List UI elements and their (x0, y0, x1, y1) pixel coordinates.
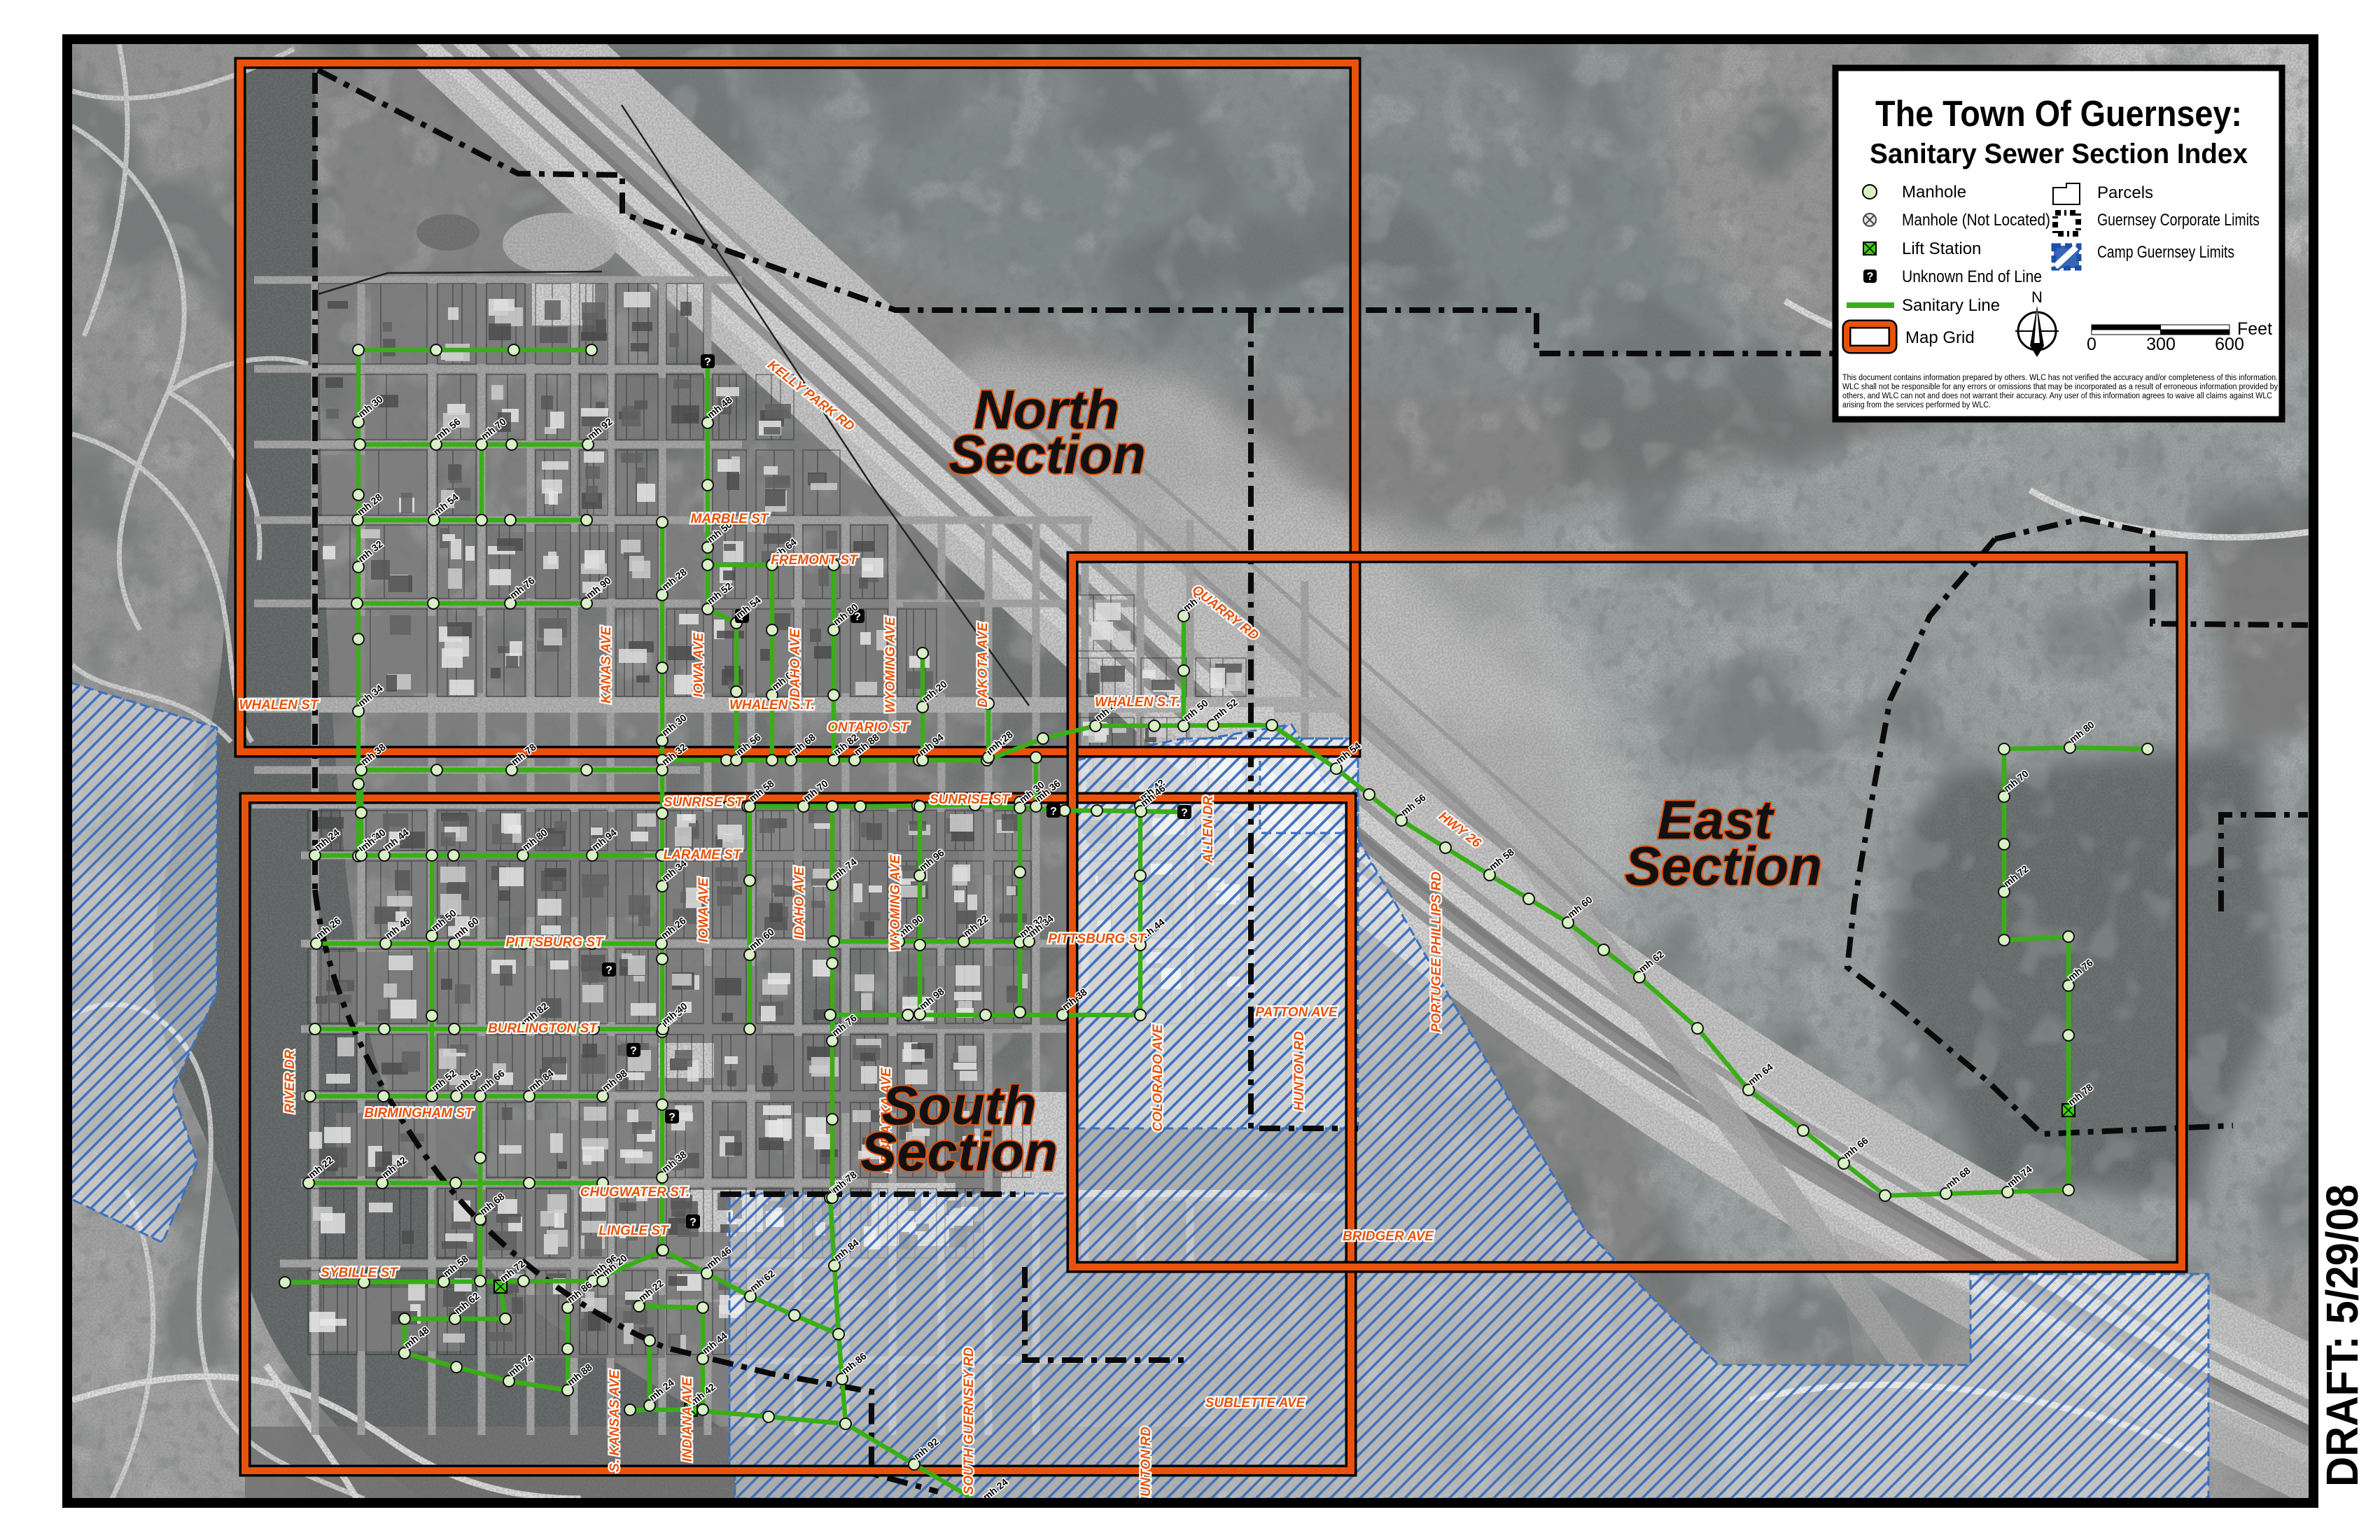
svg-text:IDAHO AVE: IDAHO AVE (788, 628, 803, 701)
svg-text:BIRMINGHAM ST: BIRMINGHAM ST (364, 1106, 474, 1121)
svg-text:This document contains informa: This document contains information prepa… (1842, 374, 2278, 382)
svg-text:IOWA AVE: IOWA AVE (692, 632, 706, 698)
svg-text:INDIANA AVE: INDIANA AVE (680, 1376, 695, 1462)
svg-text:S. KANSAS AVE: S. KANSAS AVE (608, 1369, 622, 1472)
svg-text:arising from the services perf: arising from the services performed by W… (1842, 401, 1991, 409)
svg-text:SUNRISE ST: SUNRISE ST (664, 795, 744, 810)
svg-text:PITTSBURG ST: PITTSBURG ST (1048, 932, 1147, 946)
svg-text:Manhole (Not Located): Manhole (Not Located) (1902, 211, 2050, 230)
svg-text:KANAS AVE: KANAS AVE (599, 626, 614, 703)
svg-text:others, and WLC can not and do: others, and WLC can not and does not war… (1842, 392, 2272, 400)
svg-text:SUBLETTE AVE: SUBLETTE AVE (1205, 1396, 1306, 1410)
svg-text:Map Grid: Map Grid (1905, 328, 1975, 347)
svg-text:0: 0 (2087, 335, 2096, 354)
svg-text:SYBILLE ST: SYBILLE ST (321, 1266, 398, 1280)
svg-text:N: N (2031, 288, 2043, 306)
svg-text:WHALEN S.T.: WHALEN S.T. (1095, 695, 1180, 710)
svg-text:COLORADO AVE: COLORADO AVE (1151, 1023, 1165, 1131)
svg-text:300: 300 (2146, 335, 2176, 354)
svg-text:?: ? (689, 1217, 696, 1228)
svg-text:Section: Section (860, 1121, 1058, 1182)
svg-text:WHALEN ST: WHALEN ST (239, 698, 319, 713)
svg-text:ONTARIO ST: ONTARIO ST (827, 720, 909, 735)
svg-text:CHUGWATER ST.: CHUGWATER ST. (580, 1185, 690, 1200)
svg-text:IDAHO AVE: IDAHO AVE (792, 866, 807, 939)
svg-text:IOWA AVE: IOWA AVE (696, 877, 711, 943)
svg-text:ALLEN DR: ALLEN DR (1201, 796, 1216, 864)
svg-text:WYOMING AVE: WYOMING AVE (883, 616, 898, 713)
svg-text:WLC shall not be responsible f: WLC shall not be responsible for any err… (1842, 383, 2278, 391)
svg-text:BRIDGER AVE: BRIDGER AVE (1343, 1229, 1434, 1244)
svg-text:WYOMING AVE: WYOMING AVE (888, 854, 903, 951)
svg-text:Parcels: Parcels (2097, 183, 2153, 202)
svg-text:SOUTH GUERNSEY RD: SOUTH GUERNSEY RD (962, 1347, 976, 1494)
svg-text:Lift Station: Lift Station (1902, 239, 1981, 258)
svg-text:HUNTON RD: HUNTON RD (1139, 1427, 1154, 1506)
svg-text:LINGLE ST: LINGLE ST (598, 1224, 669, 1238)
svg-text:SUNRISE ST: SUNRISE ST (930, 792, 1010, 807)
svg-text:?: ? (1181, 807, 1188, 819)
svg-text:DAKOTA AVE: DAKOTA AVE (976, 622, 990, 708)
svg-text:MARBLE ST: MARBLE ST (691, 512, 769, 526)
svg-text:?: ? (668, 1112, 675, 1123)
svg-text:PITTSBURG ST: PITTSBURG ST (505, 935, 604, 950)
svg-text:PATTON AVE: PATTON AVE (1255, 1005, 1338, 1020)
svg-text:BURLINGTON ST: BURLINGTON ST (488, 1021, 598, 1036)
svg-text:?: ? (1050, 806, 1057, 818)
svg-text:?: ? (630, 1045, 637, 1057)
svg-text:Sanitary Sewer Section Index: Sanitary Sewer Section Index (1870, 139, 2248, 169)
svg-text:?: ? (605, 965, 612, 976)
svg-text:Unknown End of Line: Unknown End of Line (1902, 267, 2042, 286)
svg-text:The Town Of Guernsey:: The Town Of Guernsey: (1875, 94, 2242, 134)
svg-text:LARAME ST: LARAME ST (664, 848, 742, 862)
svg-text:DRAFT: 5/29/08: DRAFT: 5/29/08 (2317, 1184, 2367, 1487)
svg-text:FREMONT ST: FREMONT ST (771, 553, 858, 568)
svg-text:?: ? (704, 356, 711, 368)
svg-text:Sanitary Line: Sanitary Line (1902, 296, 2000, 315)
svg-text:PORTUGEE PHILLIPS RD: PORTUGEE PHILLIPS RD (1429, 871, 1444, 1032)
svg-text:?: ? (1867, 271, 1874, 283)
svg-text:Feet: Feet (2237, 319, 2272, 339)
svg-text:Camp Guernsey Limits: Camp Guernsey Limits (2097, 243, 2234, 262)
svg-text:Section: Section (1625, 835, 1822, 897)
svg-text:HUNTON RD: HUNTON RD (1292, 1031, 1307, 1111)
svg-text:RIVER DR: RIVER DR (283, 1049, 297, 1113)
svg-text:Section: Section (948, 423, 1146, 485)
svg-text:Guernsey Corporate Limits: Guernsey Corporate Limits (2097, 211, 2260, 230)
svg-text:Manhole: Manhole (1902, 183, 1966, 202)
